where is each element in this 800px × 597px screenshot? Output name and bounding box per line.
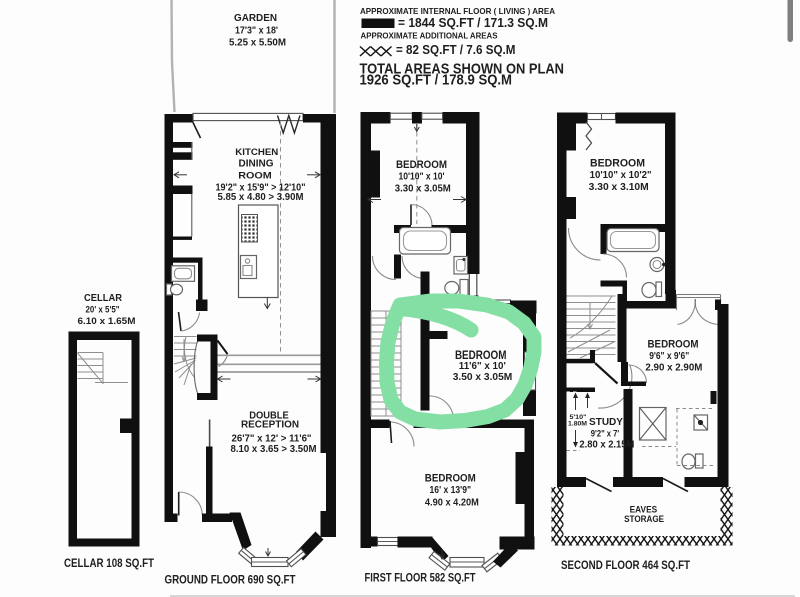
svg-text:CELLAR: CELLAR [84, 293, 123, 304]
svg-text:3.30 x 3.05M: 3.30 x 3.05M [395, 184, 451, 195]
svg-text:11'6" x 10': 11'6" x 10' [459, 361, 506, 372]
svg-text:= 1844 SQ.FT / 171.3 SQ.M: = 1844 SQ.FT / 171.3 SQ.M [398, 15, 548, 30]
svg-text:BEDROOM: BEDROOM [425, 473, 476, 485]
svg-text:2.90 x 2.90M: 2.90 x 2.90M [645, 363, 702, 374]
svg-text:STORAGE: STORAGE [624, 514, 664, 524]
svg-text:STUDY: STUDY [589, 416, 623, 428]
svg-text:10'10" x 10'2": 10'10" x 10'2" [590, 170, 652, 181]
svg-text:BEDROOM: BEDROOM [590, 158, 645, 170]
svg-text:10'10" x 10': 10'10" x 10' [399, 172, 445, 183]
svg-text:4.90 x 4.20M: 4.90 x 4.20M [425, 498, 479, 509]
svg-text:KITCHEN: KITCHEN [235, 147, 278, 158]
svg-text:1.80M: 1.80M [568, 421, 587, 428]
svg-text:GARDEN: GARDEN [234, 12, 277, 24]
svg-text:3.50 x 3.05M: 3.50 x 3.05M [453, 372, 513, 383]
svg-text:GROUND FLOOR 690 SQ.FT: GROUND FLOOR 690 SQ.FT [165, 573, 296, 587]
svg-text:5.85 x 4.80 > 3.90M: 5.85 x 4.80 > 3.90M [218, 192, 304, 203]
svg-text:EAVES: EAVES [630, 505, 658, 515]
svg-text:BEDROOM: BEDROOM [648, 339, 699, 351]
svg-text:16' x 13'9": 16' x 13'9" [430, 485, 472, 496]
svg-text:5.25 x 5.50M: 5.25 x 5.50M [229, 38, 286, 49]
svg-text:RECEPTION: RECEPTION [241, 420, 299, 431]
svg-text:17'3" x 18': 17'3" x 18' [235, 26, 278, 37]
svg-text:APPROXIMATE ADDITIONAL AREAS: APPROXIMATE ADDITIONAL AREAS [361, 31, 499, 40]
svg-text:BEDROOM: BEDROOM [455, 349, 507, 362]
svg-text:ROOM: ROOM [238, 171, 272, 182]
svg-text:BEDROOM: BEDROOM [396, 159, 447, 171]
svg-text:20' x 5'5": 20' x 5'5" [86, 305, 120, 316]
svg-text:3.30 x 3.10M: 3.30 x 3.10M [589, 182, 649, 193]
svg-text:8.10 x 3.65 > 3.50M: 8.10 x 3.65 > 3.50M [231, 444, 317, 455]
svg-text:26'7" x 12' > 11'6": 26'7" x 12' > 11'6" [232, 434, 312, 445]
svg-text:9'2" x 7': 9'2" x 7' [591, 429, 620, 440]
svg-text:SECOND FLOOR 464 SQ.FT: SECOND FLOOR 464 SQ.FT [561, 558, 690, 572]
svg-text:9'6" x 9'6": 9'6" x 9'6" [649, 351, 689, 362]
svg-text:= 82 SQ.FT / 7.6 SQ.M: = 82 SQ.FT / 7.6 SQ.M [396, 42, 516, 57]
svg-text:CELLAR 108 SQ.FT: CELLAR 108 SQ.FT [64, 556, 154, 570]
svg-text:2.80 x 2.15M: 2.80 x 2.15M [579, 440, 634, 451]
svg-text:1926 SQ.FT / 178.9 SQ.M: 1926 SQ.FT / 178.9 SQ.M [360, 73, 513, 89]
svg-text:6.10 x 1.65M: 6.10 x 1.65M [78, 316, 136, 327]
svg-text:FIRST FLOOR 582 SQ.FT: FIRST FLOOR 582 SQ.FT [365, 571, 476, 585]
svg-text:DINING: DINING [239, 159, 274, 170]
